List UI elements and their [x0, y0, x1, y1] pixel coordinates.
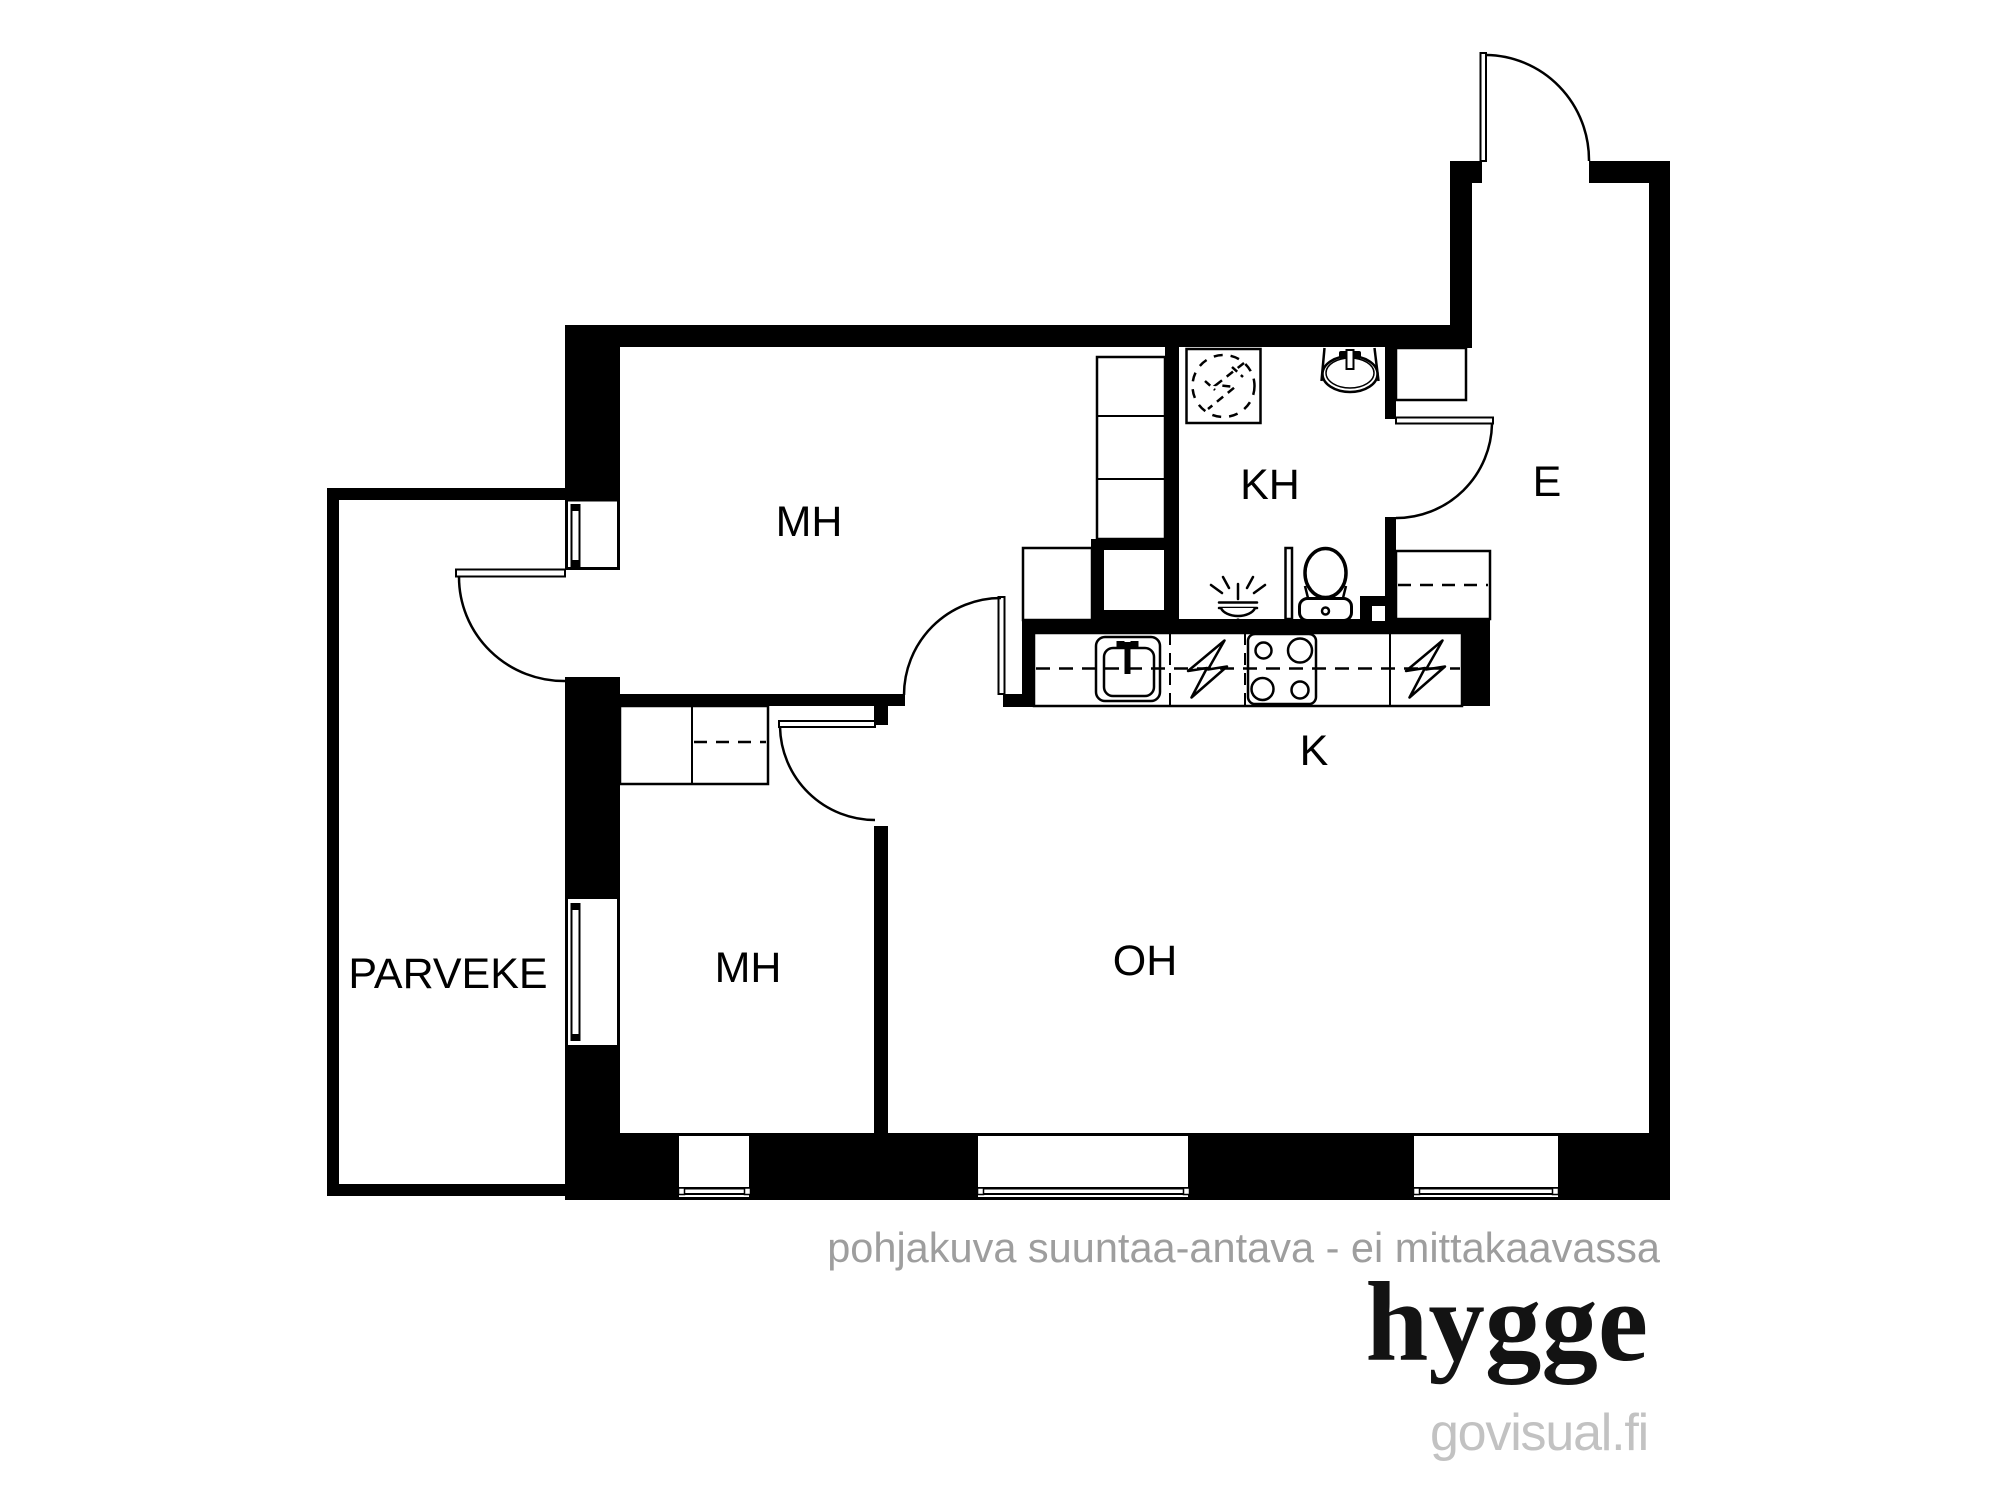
- svg-text:E: E: [1533, 458, 1562, 506]
- svg-text:hygge: hygge: [1366, 1260, 1649, 1385]
- svg-text:OH: OH: [1113, 937, 1178, 985]
- svg-text:PARVEKE: PARVEKE: [348, 950, 547, 998]
- svg-text:KH: KH: [1240, 461, 1300, 509]
- svg-text:K: K: [1300, 727, 1329, 775]
- svg-text:MH: MH: [776, 498, 843, 546]
- svg-text:MH: MH: [715, 944, 782, 992]
- svg-text:govisual.fi: govisual.fi: [1430, 1404, 1648, 1462]
